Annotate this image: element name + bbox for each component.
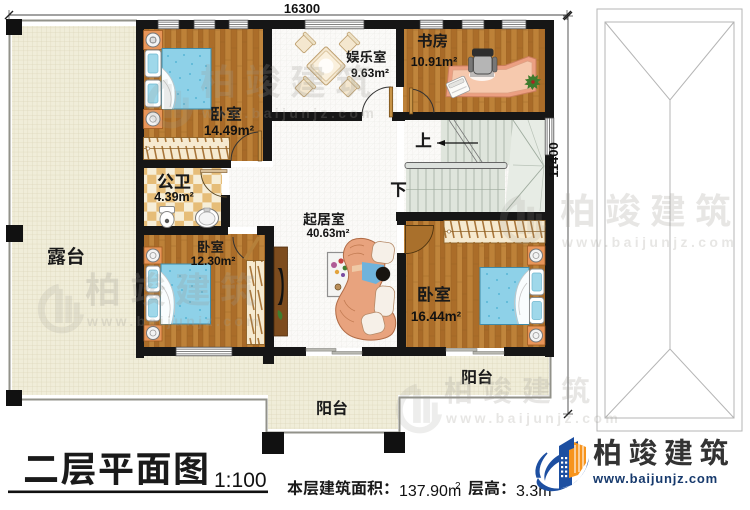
svg-text:16300: 16300 [284,1,320,16]
svg-text:40.63m²: 40.63m² [307,228,350,240]
svg-text:12.30m²: 12.30m² [191,254,236,268]
svg-text:www.baijunjz.com: www.baijunjz.com [561,234,737,250]
svg-text:137.90m: 137.90m [399,483,461,500]
svg-text:www.baijunjz.com: www.baijunjz.com [86,313,262,329]
svg-text:www.baijunjz.com: www.baijunjz.com [592,471,718,486]
svg-text:4.39m²: 4.39m² [154,190,194,204]
svg-text:3.3m: 3.3m [516,483,552,500]
svg-text:www.baijunjz.com: www.baijunjz.com [201,105,377,121]
svg-text:16.44m²: 16.44m² [411,309,462,324]
svg-text:10.91m²: 10.91m² [411,55,458,69]
svg-text:1:100: 1:100 [214,469,267,492]
svg-text:11400: 11400 [546,142,561,177]
svg-text:www.baijunjz.com: www.baijunjz.com [445,410,621,426]
svg-text:2: 2 [455,481,461,492]
svg-text:14.49m²: 14.49m² [204,123,255,138]
